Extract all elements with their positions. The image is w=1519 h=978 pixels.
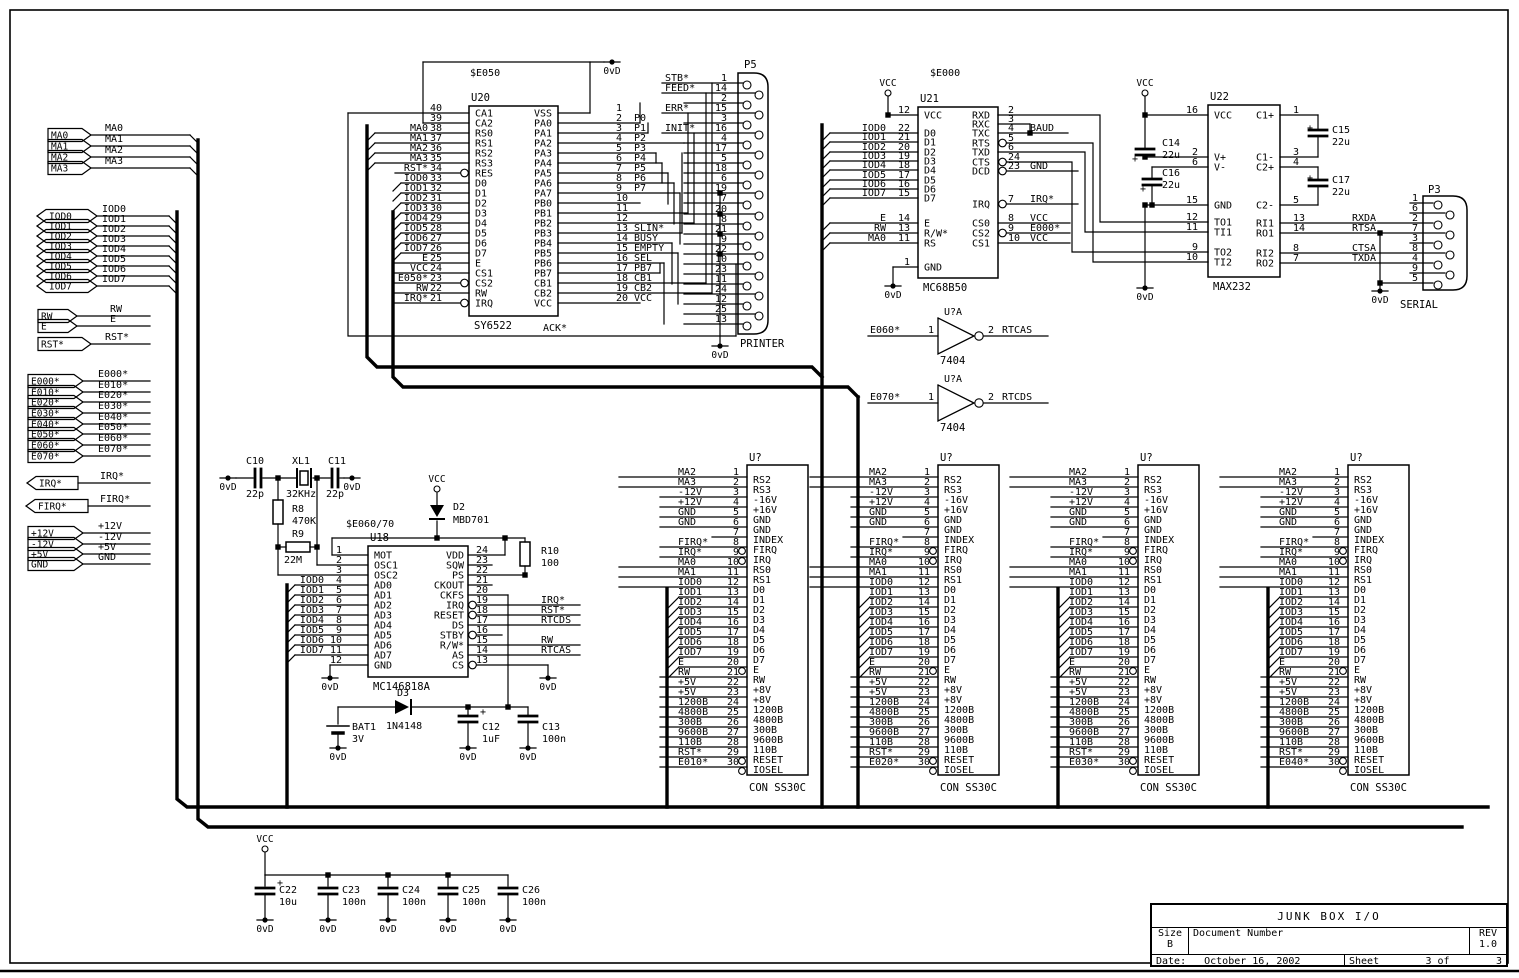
free-label: 32KHz <box>286 489 316 500</box>
diode <box>430 505 444 517</box>
pin-number: 30 <box>918 757 930 768</box>
chip-ref: U? <box>1350 452 1363 464</box>
connector-hole <box>755 151 763 159</box>
net-label: E050* <box>98 422 128 433</box>
free-label: 3V <box>352 734 364 745</box>
connector-hole <box>743 181 751 189</box>
pin-net-label: TXDA <box>1352 253 1376 264</box>
connector-ref: P3 <box>1428 184 1441 196</box>
free-label: 22u <box>1332 187 1350 198</box>
ground-label: 0vD <box>1371 295 1388 306</box>
vcc-symbol <box>1142 90 1148 96</box>
chip-ref: U? <box>749 452 762 464</box>
pin-number: 11 <box>898 233 910 244</box>
ground-label: 0vD <box>256 924 273 935</box>
pin-net-label: RTCDS <box>541 615 571 626</box>
free-label: 22u <box>1332 137 1350 148</box>
doc-label: Document Number <box>1193 928 1283 939</box>
connector-name: PRINTER <box>740 338 785 350</box>
pin-net-label: E040* <box>1279 757 1309 768</box>
free-label: 100n <box>542 734 566 745</box>
pin-name: VCC <box>1214 111 1232 122</box>
chip-part: CON SS30C <box>1350 782 1407 794</box>
connector-hole <box>755 91 763 99</box>
ground-label: 0vD <box>1136 292 1153 303</box>
ground-label: 0vD <box>319 924 336 935</box>
chip-ref: U18 <box>370 532 389 544</box>
junction-dot <box>717 343 722 348</box>
pin-number: 7 <box>1008 194 1014 205</box>
pin-net-label: RTCAS <box>541 645 571 656</box>
pin-number: 23 <box>1008 161 1020 172</box>
connector-hole <box>1434 261 1442 269</box>
free-label: 22u <box>1162 150 1180 161</box>
resistor <box>520 542 530 566</box>
connector-hole <box>755 232 763 240</box>
vcc-label: VCC <box>1136 78 1153 89</box>
junction <box>717 190 722 195</box>
ground-label: 0vD <box>539 682 556 693</box>
junction <box>434 535 439 540</box>
net-label: RST* <box>105 332 129 343</box>
free-label: 100 <box>541 558 559 569</box>
pin-number: 30 <box>1118 757 1130 768</box>
free-label: C11 <box>328 456 346 467</box>
inversion-bubble <box>1340 758 1347 765</box>
inversion-bubble <box>1130 758 1137 765</box>
junction <box>505 704 510 709</box>
pin-number: 30 <box>1328 757 1340 768</box>
connector-hole <box>1434 281 1442 289</box>
junction-dot <box>525 745 530 750</box>
ground-label: 0vD <box>321 682 338 693</box>
free-label: 22p <box>246 489 264 500</box>
free-label: C10 <box>246 456 264 467</box>
pin-number: 6 <box>1192 157 1198 168</box>
title-block-sheet: Sheet 3 of 3 <box>1345 955 1506 967</box>
inversion-bubble <box>1130 668 1137 675</box>
inversion-bubble <box>739 558 746 565</box>
free-label: R8 <box>292 504 304 515</box>
connector-hole <box>1446 211 1454 219</box>
title-block-doc: Document Number <box>1189 928 1469 954</box>
chip-part: CON SS30C <box>749 782 806 794</box>
inversion-bubble <box>739 768 746 775</box>
net-label: GND <box>98 552 116 563</box>
inversion-bubble <box>930 548 937 555</box>
free-label: D3 <box>397 688 409 699</box>
inversion-bubble <box>1340 768 1347 775</box>
pin-net-label: RTCAS <box>1002 325 1032 336</box>
gate-ref: U?A <box>944 374 962 385</box>
pin-name: VCC <box>534 299 552 310</box>
net-label: E070* <box>98 444 128 455</box>
pin-number: 10 <box>1186 252 1198 263</box>
free-label: 100n <box>342 897 366 908</box>
title-block-date: Date: October 16, 2002 <box>1152 955 1345 967</box>
chip-part: CON SS30C <box>1140 782 1197 794</box>
junction <box>717 211 722 216</box>
pin-name: TI1 <box>1214 228 1232 239</box>
free-label: $E000 <box>930 68 960 79</box>
pin-name: TI2 <box>1214 258 1232 269</box>
junction <box>385 872 390 877</box>
inversion-bubble <box>1340 558 1347 565</box>
free-label: C15 <box>1332 125 1350 136</box>
connector-hole <box>755 292 763 300</box>
size-value: B <box>1167 939 1173 950</box>
free-label: C16 <box>1162 168 1180 179</box>
junction-dot <box>262 917 267 922</box>
junction <box>1377 230 1382 235</box>
free-label: BAT1 <box>352 722 376 733</box>
free-label: R10 <box>541 546 559 557</box>
inversion-bubble <box>461 169 469 177</box>
pin-name: IOSEL <box>1354 765 1384 776</box>
pin-number: 12 <box>330 655 342 666</box>
free-label: 100n <box>522 897 546 908</box>
junction <box>885 112 890 117</box>
junction-dot <box>545 675 550 680</box>
pin-name: CS <box>452 661 464 672</box>
free-label: C17 <box>1332 175 1350 186</box>
junction <box>1142 112 1147 117</box>
chip-part: MC68B50 <box>923 282 967 294</box>
free-label: + <box>277 878 283 889</box>
sheet-label: Sheet <box>1349 956 1379 967</box>
chip-part: SY6522 <box>474 320 512 332</box>
pin-number: 2 <box>988 325 994 336</box>
pin-number: 1 <box>1293 105 1299 116</box>
connector-name: SERIAL <box>1400 299 1438 311</box>
inversion-bubble <box>930 668 937 675</box>
junction <box>275 544 280 549</box>
inverter-gate <box>938 385 974 421</box>
pin-number: 2 <box>988 392 994 403</box>
junction <box>465 704 470 709</box>
pin-net-label: ERR* <box>665 103 689 114</box>
pin-net-label: GND <box>678 517 696 528</box>
ground-label: 0vD <box>711 350 728 361</box>
junction-dot <box>225 475 230 480</box>
free-label: + <box>480 707 486 718</box>
connector-hole <box>755 191 763 199</box>
junction-dot <box>609 59 614 64</box>
connector-hole <box>755 131 763 139</box>
connector-hole <box>743 222 751 230</box>
ground-label: 0vD <box>884 290 901 301</box>
inverter-gate <box>938 318 974 354</box>
connector-hole <box>755 312 763 320</box>
vcc-symbol <box>434 486 440 492</box>
inversion-bubble <box>930 768 937 775</box>
pin-name: IOSEL <box>1144 765 1174 776</box>
pin-number: 21 <box>430 293 442 304</box>
ground-label: 0vD <box>379 924 396 935</box>
ground-label: 0vD <box>219 482 236 493</box>
net-label: IOD7 <box>102 274 126 285</box>
free-label: $E060/70 <box>346 519 394 530</box>
schematic-page: MA0MA0MA1MA1MA2MA2MA3MA3IOD0IOD0IOD1IOD1… <box>0 0 1519 978</box>
pin-name: C2- <box>1256 201 1274 212</box>
junction-dot <box>505 917 510 922</box>
pin-net-label: FEED* <box>665 83 695 94</box>
connector-hole <box>743 242 751 250</box>
pin-number: 10 <box>1008 233 1020 244</box>
vcc-label: VCC <box>879 78 896 89</box>
free-label: 470K <box>292 516 316 527</box>
net-label: E060* <box>98 433 128 444</box>
junction <box>502 535 507 540</box>
pin-name: IOSEL <box>944 765 974 776</box>
pin-net-label: E070* <box>870 392 900 403</box>
pin-name: IRQ <box>475 299 493 310</box>
pin-number: 1 <box>904 257 910 268</box>
pin-name: GND <box>1214 201 1232 212</box>
net-label: +12V <box>98 521 122 532</box>
pin-net-label: E010* <box>678 757 708 768</box>
pin-number: 14 <box>1293 223 1305 234</box>
pin-net-label: E020* <box>869 757 899 768</box>
port-flag-label: IRQ* <box>39 479 62 490</box>
bus-entry <box>393 193 401 201</box>
free-label: ACK* <box>543 323 567 334</box>
size-label: Size <box>1158 928 1182 939</box>
title-block: JUNK BOX I/O Size B Document Number REV … <box>1150 903 1508 967</box>
junction-dot <box>327 675 332 680</box>
pin-net-label: RTCDS <box>1002 392 1032 403</box>
title-block-size: Size B <box>1152 928 1189 954</box>
junction <box>1142 202 1147 207</box>
junction-dot <box>325 917 330 922</box>
pin-name: C1+ <box>1256 111 1274 122</box>
free-label: C24 <box>402 885 420 896</box>
inversion-bubble <box>1130 768 1137 775</box>
connector-hole <box>743 101 751 109</box>
pin-number: 13 <box>715 314 727 325</box>
gate-part: 7404 <box>940 355 965 367</box>
pin-net-label: E030* <box>1069 757 1099 768</box>
connector-hole <box>743 262 751 270</box>
title-block-rev: REV 1.0 <box>1469 928 1506 954</box>
connector-hole <box>755 171 763 179</box>
pin-net-label: IRQ* <box>1030 194 1054 205</box>
junction-dot <box>1377 288 1382 293</box>
connector-hole <box>743 81 751 89</box>
rev-value: 1.0 <box>1479 939 1497 950</box>
pin-number: 5 <box>1293 195 1299 206</box>
pin-number: 13 <box>476 655 488 666</box>
pin-number: 1 <box>928 325 934 336</box>
wire <box>590 62 604 113</box>
free-label: 10u <box>279 897 297 908</box>
free-label: 22p <box>326 489 344 500</box>
pin-net-label: RTSA <box>1352 223 1376 234</box>
chip-ref: U22 <box>1210 91 1229 103</box>
pin-name: IRQ <box>972 200 990 211</box>
resistor <box>273 500 283 524</box>
junction <box>1142 154 1147 159</box>
free-label: + <box>1307 173 1313 184</box>
vcc-label: VCC <box>256 834 273 845</box>
junction <box>717 251 722 256</box>
vcc-label: VCC <box>428 474 445 485</box>
net-label: MA3 <box>105 156 123 167</box>
inversion-bubble <box>999 200 1007 208</box>
pin-number: 5 <box>1412 273 1418 284</box>
chip-part: MAX232 <box>1213 281 1251 293</box>
connector-hole <box>1434 241 1442 249</box>
vcc-symbol <box>262 846 268 852</box>
inversion-bubble <box>975 399 983 407</box>
pin-number: 15 <box>898 188 910 199</box>
pin-net-label: VCC <box>1030 233 1048 244</box>
inversion-bubble <box>999 158 1007 166</box>
pin-net-label: IRQ* <box>404 293 428 304</box>
pin-name: RO2 <box>1256 259 1274 270</box>
pin-name: CS1 <box>972 239 990 250</box>
pin-net-label: BAUD <box>1030 123 1054 134</box>
connector-hole <box>743 201 751 209</box>
port-flag-label: E <box>41 322 47 333</box>
connector-ref: P5 <box>744 59 757 71</box>
date-label: Date: <box>1152 956 1190 967</box>
port-flag-label: GND <box>31 560 48 571</box>
pin-net-label: GND <box>1069 517 1087 528</box>
free-label: XL1 <box>292 456 310 467</box>
bus-entry <box>393 183 401 191</box>
junction-dot <box>1142 285 1147 290</box>
pin-number: 20 <box>616 293 628 304</box>
title-block-title: JUNK BOX I/O <box>1152 905 1506 928</box>
junction <box>1377 280 1382 285</box>
junction <box>522 572 527 577</box>
connector-hole <box>755 111 763 119</box>
free-label: + <box>1140 184 1146 195</box>
net-label: MA1 <box>105 134 123 145</box>
connector-hole <box>1434 201 1442 209</box>
pin-number: 1 <box>928 392 934 403</box>
sheet-count: 3 of <box>1425 956 1449 967</box>
pin-number: 12 <box>898 105 910 116</box>
ground-label: 0vD <box>459 752 476 763</box>
pin-name: RO1 <box>1256 229 1274 240</box>
pin-name: GND <box>924 263 942 274</box>
free-label: MBD701 <box>453 515 489 526</box>
pin-net-label: P7 <box>634 183 646 194</box>
ground-label: 0vD <box>329 752 346 763</box>
free-label: + <box>1132 154 1138 165</box>
pin-number: 7 <box>1293 253 1299 264</box>
connector-hole <box>1446 251 1454 259</box>
free-label: 1N4148 <box>386 721 422 732</box>
pin-name: C2+ <box>1256 163 1274 174</box>
sheet-total: 3 <box>1496 956 1502 967</box>
pin-net-label: GND <box>1279 517 1297 528</box>
connector-hole <box>743 322 751 330</box>
free-label: C13 <box>542 722 560 733</box>
free-label: D2 <box>453 502 465 513</box>
junction <box>717 231 722 236</box>
crystal <box>300 471 308 485</box>
ground-label: 0vD <box>519 752 536 763</box>
pin-name: D7 <box>924 194 936 205</box>
connector-hole <box>755 252 763 260</box>
connector-hole <box>743 282 751 290</box>
net-label: IRQ* <box>100 471 124 482</box>
bus-entry <box>393 203 401 211</box>
inversion-bubble <box>999 167 1007 175</box>
connector-hole <box>1446 231 1454 239</box>
net-label: MA2 <box>105 145 123 156</box>
pin-name: DCD <box>972 167 990 178</box>
free-label: 100n <box>462 897 486 908</box>
net-label: MA0 <box>105 123 123 134</box>
port-flag-label: MA3 <box>51 164 68 175</box>
pin-net-label: INIT* <box>665 123 695 134</box>
pin-net-label: IOD7 <box>300 645 324 656</box>
free-label: C25 <box>462 885 480 896</box>
junction <box>275 475 280 480</box>
free-label: C12 <box>482 722 500 733</box>
chip-ref: U20 <box>471 92 490 104</box>
diode <box>395 700 409 714</box>
pin-net-label: MA0 <box>868 233 886 244</box>
gate-part: 7404 <box>940 422 965 434</box>
junction-dot <box>465 745 470 750</box>
pin-name: V- <box>1214 163 1226 174</box>
free-label: 22M <box>284 555 302 566</box>
inversion-bubble <box>739 758 746 765</box>
inversion-bubble <box>1340 548 1347 555</box>
port-flag-label: FIRQ* <box>38 502 67 513</box>
free-label: R9 <box>292 529 304 540</box>
pin-number: 15 <box>1186 195 1198 206</box>
gate-ref: U?A <box>944 307 962 318</box>
connector-hole <box>743 121 751 129</box>
junction <box>314 544 319 549</box>
pin-name: VCC <box>924 111 942 122</box>
inversion-bubble <box>1130 558 1137 565</box>
chip-ref: U21 <box>920 93 939 105</box>
connector-hole <box>1446 271 1454 279</box>
junction <box>314 475 319 480</box>
inversion-bubble <box>975 332 983 340</box>
junction-dot <box>890 283 895 288</box>
free-label: 22u <box>1162 180 1180 191</box>
inversion-bubble <box>739 548 746 555</box>
ground-label: 0vD <box>603 66 620 77</box>
ground-label: 0vD <box>499 924 516 935</box>
pin-net-label: GND <box>1030 161 1048 172</box>
pin-number: 16 <box>1186 105 1198 116</box>
connector-hole <box>755 212 763 220</box>
junction-dot <box>349 475 354 480</box>
schematic-canvas: MA0MA0MA1MA1MA2MA2MA3MA3IOD0IOD0IOD1IOD1… <box>0 0 1519 978</box>
resistor <box>286 542 310 552</box>
ground-label: 0vD <box>439 924 456 935</box>
inversion-bubble <box>1130 548 1137 555</box>
connector-hole <box>755 272 763 280</box>
pin-name: GND <box>374 661 392 672</box>
pin-net-label: IOD7 <box>862 188 886 199</box>
inversion-bubble <box>1340 668 1347 675</box>
rev-label: REV <box>1479 928 1497 939</box>
connector-hole <box>1434 221 1442 229</box>
inversion-bubble <box>739 668 746 675</box>
free-label: C14 <box>1162 138 1180 149</box>
connector-hole <box>743 302 751 310</box>
